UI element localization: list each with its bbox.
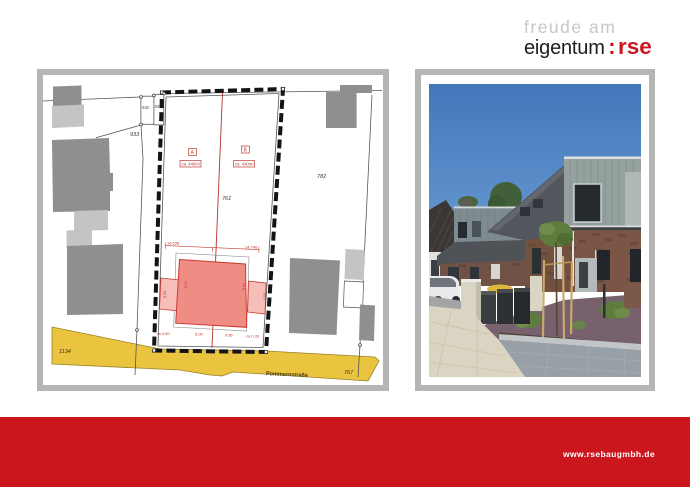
svg-text:6.00: 6.00 bbox=[195, 332, 204, 337]
svg-text:5.05: 5.05 bbox=[263, 293, 267, 300]
svg-text:14.746: 14.746 bbox=[245, 245, 258, 250]
svg-text:9.61: 9.61 bbox=[242, 283, 246, 290]
svg-text:761: 761 bbox=[222, 196, 231, 202]
svg-text:Pommernstraße: Pommernstraße bbox=[266, 371, 308, 379]
svg-text:1134: 1134 bbox=[59, 349, 71, 355]
svg-text:767: 767 bbox=[344, 370, 354, 376]
svg-text:933: 933 bbox=[130, 132, 140, 138]
svg-text:B: B bbox=[244, 148, 248, 154]
svg-text:9.61: 9.61 bbox=[184, 281, 188, 288]
svg-text:9.86: 9.86 bbox=[225, 333, 234, 338]
svg-text:ca 0.50: ca 0.50 bbox=[157, 331, 171, 336]
svg-text:ca. 440m²: ca. 440m² bbox=[235, 162, 254, 167]
svg-text:5.05: 5.05 bbox=[163, 291, 167, 298]
svg-text:ca. 440m²: ca. 440m² bbox=[182, 162, 201, 167]
svg-text:A: A bbox=[191, 150, 195, 156]
svg-text:932: 932 bbox=[142, 105, 150, 110]
svg-text:ca 0.36: ca 0.36 bbox=[246, 334, 260, 339]
svg-text:14.538: 14.538 bbox=[167, 241, 180, 246]
svg-text:782: 782 bbox=[317, 174, 326, 180]
